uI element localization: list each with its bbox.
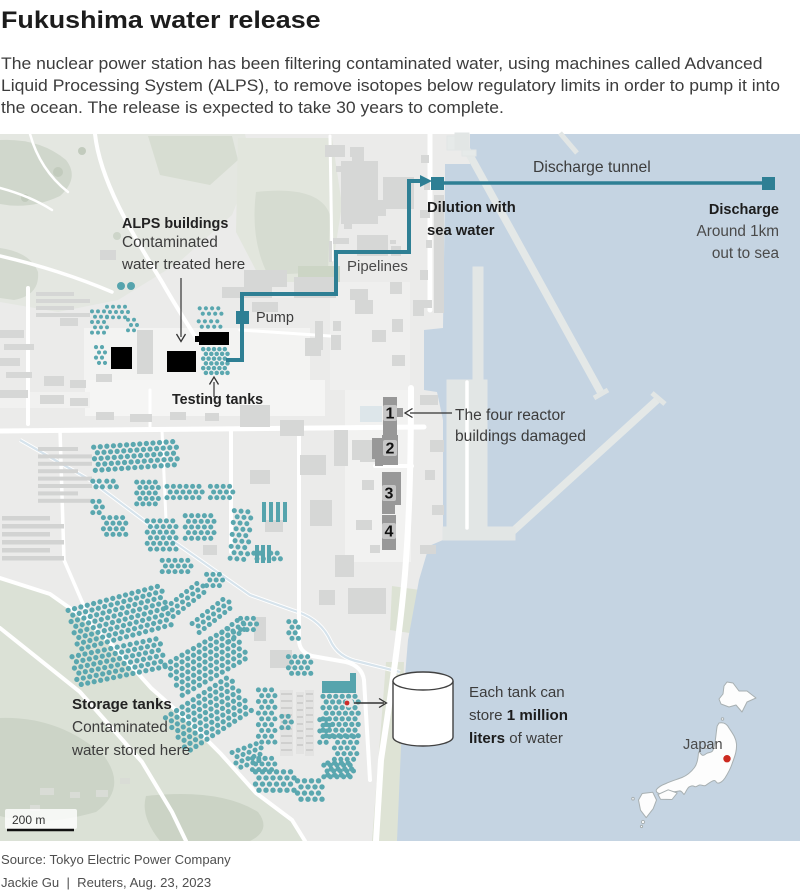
svg-text:Contaminated: Contaminated <box>72 719 168 736</box>
svg-text:store 1 million: store 1 million <box>469 707 568 724</box>
svg-text:Contaminated: Contaminated <box>122 234 218 251</box>
svg-text:the ocean. The release is expe: the ocean. The release is expected to ta… <box>1 99 504 117</box>
svg-text:1: 1 <box>386 406 395 423</box>
svg-text:Discharge tunnel: Discharge tunnel <box>533 159 651 176</box>
svg-text:liters of water: liters of water <box>469 730 563 747</box>
svg-text:water treated here: water treated here <box>121 256 245 273</box>
svg-text:sea water: sea water <box>427 223 495 239</box>
svg-text:Fukushima water release: Fukushima water release <box>1 7 321 33</box>
svg-text:The nuclear power station has: The nuclear power station has been filte… <box>1 55 763 73</box>
svg-text:2: 2 <box>386 441 395 458</box>
svg-text:water stored here: water stored here <box>71 742 190 759</box>
svg-text:Dilution with: Dilution with <box>427 200 516 216</box>
svg-text:ALPS buildings: ALPS buildings <box>122 216 228 232</box>
svg-text:3: 3 <box>385 486 394 503</box>
svg-text:4: 4 <box>385 524 394 541</box>
svg-text:Liquid Processing System (ALPS: Liquid Processing System (ALPS), to remo… <box>1 77 780 95</box>
svg-text:Testing tanks: Testing tanks <box>172 392 263 408</box>
svg-text:Japan: Japan <box>683 737 723 753</box>
svg-text:Around 1km: Around 1km <box>697 223 779 240</box>
svg-text:200 m: 200 m <box>12 813 45 827</box>
svg-text:Pump: Pump <box>256 310 294 326</box>
svg-text:Pipelines: Pipelines <box>347 258 408 275</box>
svg-text:Source: Tokyo Electric Power C: Source: Tokyo Electric Power Company <box>1 852 231 867</box>
svg-text:buildings damaged: buildings damaged <box>455 428 586 445</box>
svg-text:The four reactor: The four reactor <box>455 407 565 424</box>
svg-text:Jackie Gu | Reuters, Aug. 23: Jackie Gu | Reuters, Aug. 23, 2023 <box>1 875 211 890</box>
svg-text:Each tank can: Each tank can <box>469 684 565 701</box>
svg-text:Discharge: Discharge <box>709 202 779 218</box>
svg-text:out to sea: out to sea <box>712 245 780 262</box>
svg-text:Storage tanks: Storage tanks <box>72 696 172 713</box>
